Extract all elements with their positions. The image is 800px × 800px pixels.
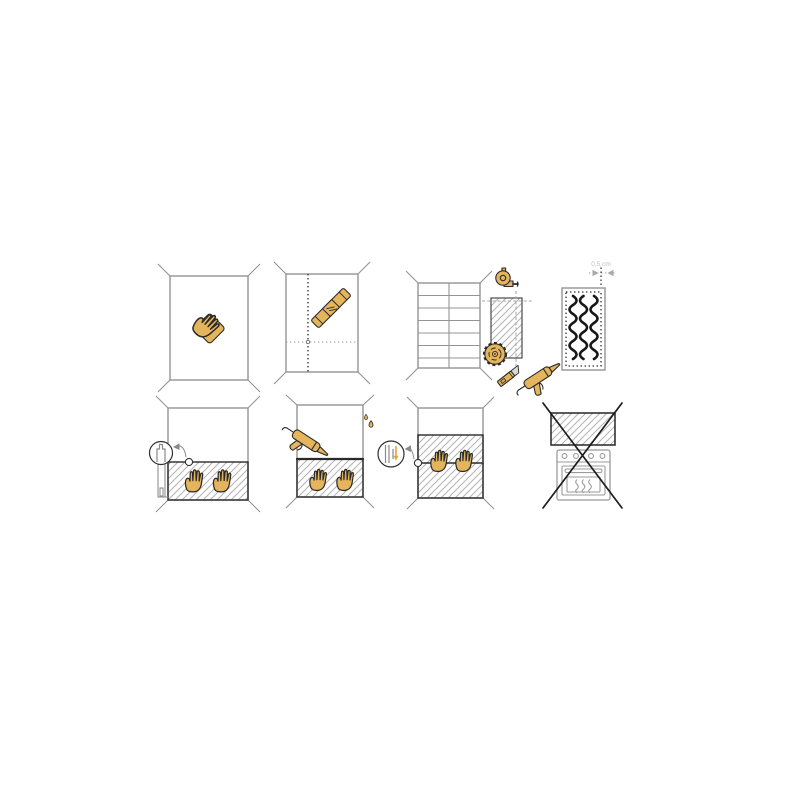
marker-circle [185, 458, 192, 465]
steps-grid: 0,5 cm [130, 252, 678, 544]
step-7-join-panels [368, 396, 518, 531]
gap-measure-annotation [589, 268, 617, 291]
step-4-apply-adhesive: 0,5 cm [522, 254, 647, 399]
detail-arrow [405, 445, 415, 459]
measuring-tape-icon [496, 268, 518, 287]
step-2-mark-guide-lines [272, 260, 382, 395]
step-3-measure-and-cut [402, 262, 537, 402]
intersection-marker [306, 340, 309, 343]
marker-circle [414, 459, 421, 466]
step-8-not-above-stove [531, 398, 661, 528]
panels-on-wall [418, 435, 483, 498]
step-5-mount-panel-on-rail [132, 396, 262, 531]
panel-installed [168, 462, 248, 500]
rail-magnifier-detail [150, 442, 173, 465]
step-1-clean-wall [156, 262, 266, 397]
gap-width-label: 0,5 cm [591, 261, 611, 268]
instruction-sheet: 0,5 cm [0, 0, 800, 800]
tiled-wall [406, 271, 492, 380]
crossed-panel [551, 413, 615, 445]
utility-knife-icon [497, 365, 522, 386]
joint-magnifier-detail [378, 441, 404, 467]
